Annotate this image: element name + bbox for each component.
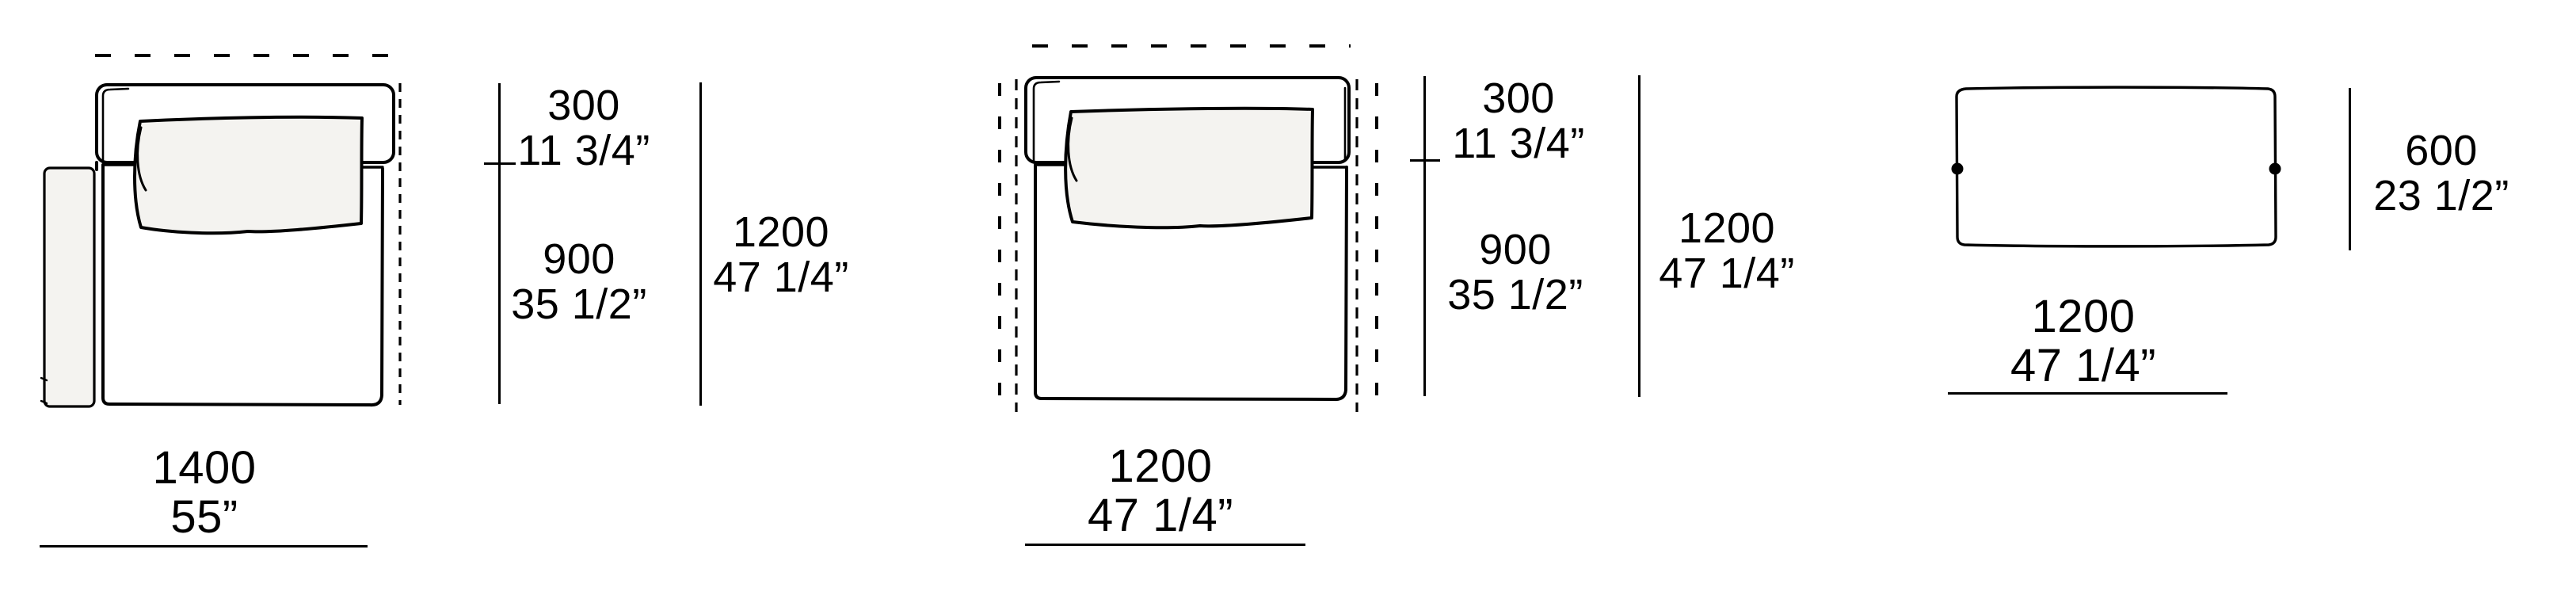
- module2-total-depth-inch: 47 1/4”: [1659, 251, 1795, 296]
- module1-backrest-depth-inch: 11 3/4”: [517, 128, 650, 174]
- module1-width-underline: [40, 545, 368, 547]
- module2-width-inch: 47 1/4”: [1088, 491, 1233, 540]
- module1-depth-dimline: [498, 83, 501, 404]
- module1-headrest-cushion: [135, 117, 362, 233]
- module1-width-mm: 1400: [152, 444, 256, 493]
- module3-depth-inch: 23 1/2”: [2373, 174, 2509, 219]
- module2-backrest-depth-mm: 300: [1452, 76, 1585, 121]
- module3-drawing: [1933, 63, 2305, 269]
- module3-width-label: 1200 47 1/4”: [2010, 292, 2156, 391]
- module2-depth-tick: [1410, 159, 1440, 162]
- module2-seat-depth-inch: 35 1/2”: [1447, 273, 1583, 318]
- module1-backrest-depth-mm: 300: [517, 83, 650, 128]
- module2-drawing: [982, 20, 1394, 416]
- module2-seat-depth-mm: 900: [1447, 227, 1583, 273]
- module2-total-depth-mm: 1200: [1659, 206, 1795, 251]
- module2-width-underline: [1025, 544, 1305, 546]
- dimension-diagram: 1400 55” 300 11 3/4” 900 35 1/2” 1200 47…: [0, 0, 2576, 599]
- module1-total-depth-dimline: [699, 82, 702, 406]
- module1-seat-depth: 900 35 1/2”: [511, 237, 647, 327]
- module3-depth-mm: 600: [2373, 128, 2509, 174]
- module1-width-label: 1400 55”: [152, 444, 256, 542]
- module3-depth-dimline: [2349, 88, 2351, 250]
- module3-bench-outline: [1957, 87, 2276, 246]
- module1-total-depth: 1200 47 1/4”: [713, 210, 849, 300]
- module1-total-depth-inch: 47 1/4”: [713, 255, 849, 300]
- module3-width-mm: 1200: [2010, 292, 2156, 341]
- module2-seat-depth: 900 35 1/2”: [1447, 227, 1583, 318]
- module1-width-inch: 55”: [152, 493, 256, 542]
- module2-width-mm: 1200: [1088, 442, 1233, 491]
- module1-armrest: [44, 168, 94, 406]
- module2-total-depth-dimline: [1638, 75, 1640, 397]
- module2-backrest-depth-inch: 11 3/4”: [1452, 121, 1585, 166]
- module1-total-depth-mm: 1200: [713, 210, 849, 255]
- module2-headrest-cushion: [1065, 109, 1313, 228]
- module2-backrest-depth: 300 11 3/4”: [1452, 76, 1585, 166]
- module1-depth-tick: [484, 162, 516, 165]
- module3-width-underline: [1948, 392, 2227, 395]
- module3-depth: 600 23 1/2”: [2373, 128, 2509, 219]
- module3-width-inch: 47 1/4”: [2010, 341, 2156, 391]
- module2-depth-dimline: [1423, 76, 1426, 396]
- module1-seat-depth-mm: 900: [511, 237, 647, 282]
- module3-right-connector-dot: [2269, 163, 2281, 175]
- module1-backrest-depth: 300 11 3/4”: [517, 83, 650, 174]
- module2-width-label: 1200 47 1/4”: [1088, 442, 1233, 540]
- module3-left-connector-dot: [1952, 163, 1964, 175]
- module2-total-depth: 1200 47 1/4”: [1659, 206, 1795, 296]
- module1-seat-depth-inch: 35 1/2”: [511, 282, 647, 327]
- module1-drawing: [16, 20, 412, 416]
